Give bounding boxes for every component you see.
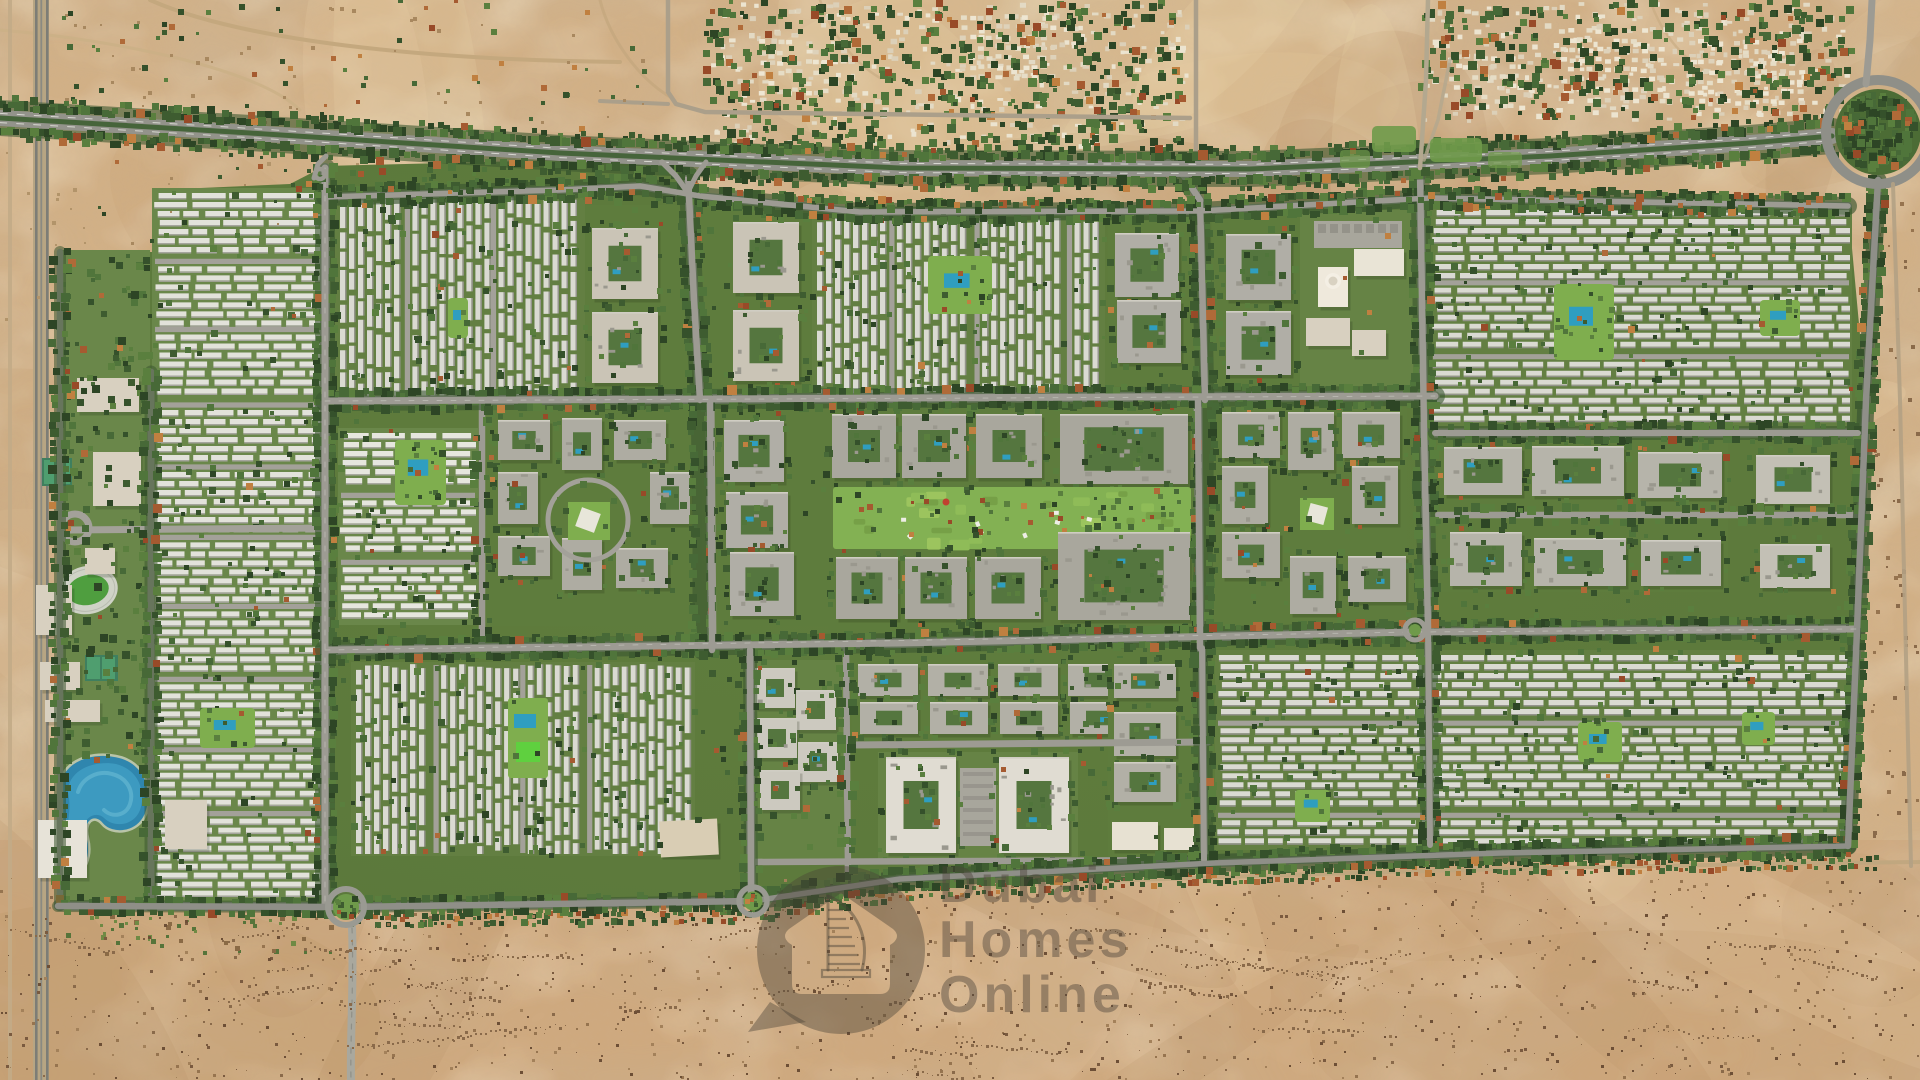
svg-text:Online: Online bbox=[939, 966, 1125, 1024]
svg-text:Homes: Homes bbox=[939, 911, 1132, 969]
svg-text:Dubai: Dubai bbox=[939, 856, 1103, 914]
